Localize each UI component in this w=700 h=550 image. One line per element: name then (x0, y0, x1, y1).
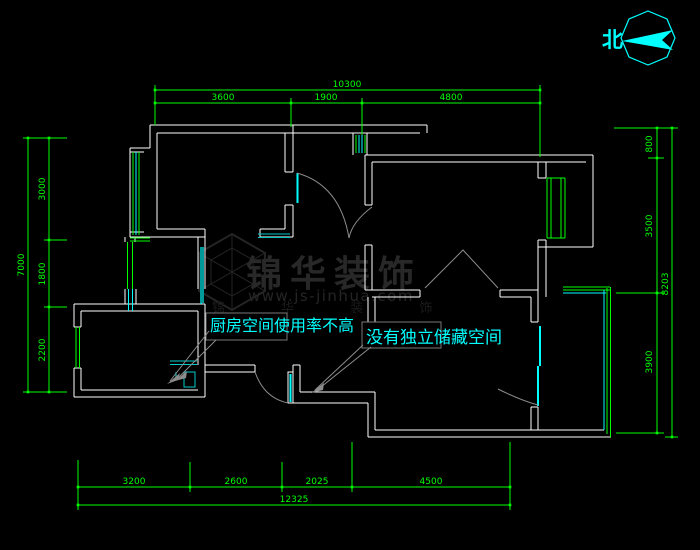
swing-roomB (349, 207, 372, 238)
door-sliding-leaves (538, 326, 540, 406)
dim-bottom-seg4: 4500 (420, 477, 443, 487)
dim-bottom-overall: 12325 (280, 495, 309, 505)
annotation-kitchen-leaders (170, 331, 216, 381)
wall-bedroom1-right (285, 125, 293, 237)
watermark: 锦华装饰 www.js-jinhua.com 锦 华 装 饰 (199, 234, 458, 316)
dim-top-overall: 10300 (333, 80, 362, 90)
wall-bottom (368, 430, 611, 437)
dim-bottom-seg1: 3200 (123, 477, 146, 487)
annotation-storage-text: 没有独立储藏空间 (366, 328, 502, 348)
dim-top-seg3: 4800 (440, 93, 463, 103)
window-balcony-top (563, 287, 610, 290)
cad-floorplan-view: 锦华装饰 www.js-jinhua.com 锦 华 装 饰 (0, 0, 700, 550)
swing-bedroom1 (297, 173, 349, 238)
annotation-kitchen-text: 厨房空间使用率不高 (210, 316, 354, 335)
track-teal-pair (258, 234, 290, 238)
dim-right-seg2: 3500 (645, 214, 655, 237)
wall-slide-stub-upper (531, 297, 538, 322)
swing-entry (255, 372, 288, 403)
watermark-brand-row2: 锦 华 装 饰 (212, 301, 458, 316)
dim-top-seg2: 1900 (315, 93, 338, 103)
dim-right-seg3: 3900 (645, 350, 655, 373)
dim-bottom-seg3: 2025 (306, 477, 329, 487)
drawing-svg: 锦华装饰 www.js-jinhua.com 锦 华 装 饰 (0, 0, 700, 550)
window-kitchen-left (76, 327, 80, 368)
wall-corridor-bottom (130, 229, 293, 237)
window-roomB-west (356, 135, 365, 153)
wall-slide-stub-lower (531, 407, 538, 430)
window-left-mid (128, 238, 151, 289)
dim-bottom-seg2: 2600 (225, 477, 248, 487)
wall-kitchen (74, 289, 205, 397)
north-arrow-icon (622, 30, 673, 50)
wall-bedroom1-left-bay (130, 125, 157, 237)
window-balcony-right (607, 287, 611, 437)
dim-right-seg1: 800 (645, 135, 655, 152)
dim-left-seg3: 2200 (38, 338, 48, 361)
window-roomB-bay (547, 178, 565, 238)
dim-left-seg2: 1800 (38, 262, 48, 285)
dim-left-overall: 7000 (17, 253, 27, 276)
compass: 北 (602, 11, 675, 65)
north-label: 北 (602, 28, 623, 52)
swing-roomB-opening (425, 250, 498, 288)
dim-left-seg1: 3000 (38, 177, 48, 200)
dim-right-overall: 8203 (661, 273, 671, 296)
wall-top-bar (150, 125, 427, 133)
swing-sliding (498, 389, 538, 405)
dim-top-seg1: 3600 (212, 93, 235, 103)
wall-roomB-top (365, 155, 593, 162)
